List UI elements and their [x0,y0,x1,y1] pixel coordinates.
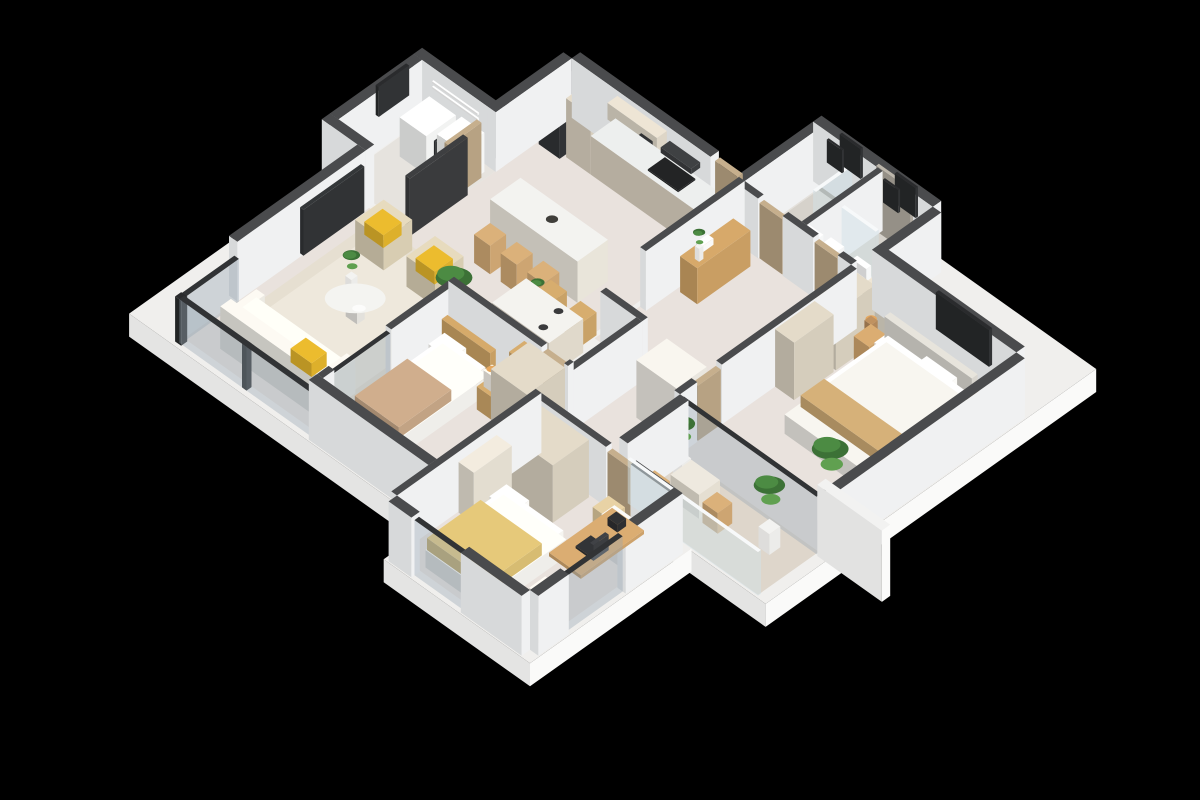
balcony-fin-wall-right-face [882,525,890,602]
shower1-window-right-face [842,149,844,173]
floorplan-stage [0,0,1200,800]
island-fruit-bowl [546,215,558,223]
coffee-table-plant-leaves-2 [347,263,358,269]
place-setting-2 [554,308,564,314]
master-north-window-right-face [989,328,992,367]
shower2-window-right-face [898,189,900,213]
master-balcony-railing-right-face [758,550,761,596]
place-setting-4 [538,324,548,330]
kitchen-west-wall-left-face [487,106,495,172]
bedroom3-south-wall-b-right-face [522,590,530,656]
balcony-plant-2-leaves-2 [761,494,780,505]
place-setting-2 [554,308,564,314]
living-palm-plant-leaves-1 [437,266,464,281]
bath-vent-louver-2-right-face [916,187,918,219]
master-plant-tall-leaves-1 [813,437,840,452]
console-flowers-leaves-2 [696,240,703,244]
apartment-3d-floorplan-render [0,0,1200,800]
hall-console-wall-left-face [640,247,646,311]
master-plant-tall-leaves-2 [821,458,843,471]
coffee-table-book [352,305,366,312]
bedroom3-east-wall-b-left-face [530,590,538,656]
place-setting-4 [538,324,548,330]
bath-vent-louver-1-right-face [861,148,863,180]
coffee-table-book [352,305,366,312]
laundry-south-wall-right-face [366,145,374,211]
island-fruit-bowl [546,215,558,223]
tv-panel-left-face [300,207,303,255]
console-flowers-leaves-1 [694,231,703,236]
coffee-table-plant-leaves-1 [343,251,356,258]
balcony-plant-2-leaves-1 [755,475,778,488]
laundry-vent-louver-left-face [376,85,379,117]
